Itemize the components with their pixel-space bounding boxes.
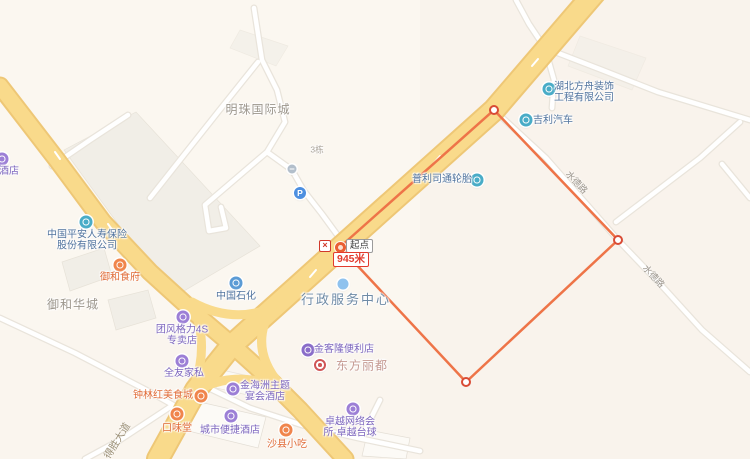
- edge-hotel-label[interactable]: 酒店: [0, 167, 19, 178]
- jili-qiche-label[interactable]: 吉利汽车: [533, 116, 573, 127]
- jinkelong-bianlidian-icon[interactable]: [302, 344, 315, 357]
- dongfang-lidu-icon[interactable]: [314, 359, 326, 371]
- zhongguo-shihua-icon[interactable]: [230, 277, 243, 290]
- kouweitang-label[interactable]: 口味堂: [162, 424, 192, 435]
- zhongguo-shihua-label[interactable]: 中国石化: [216, 292, 256, 303]
- measure-close-button[interactable]: ×: [319, 240, 331, 252]
- jinhaizhou-hotel-label[interactable]: 金海洲主题宴会酒店: [240, 382, 290, 403]
- yuhe-shifu-icon[interactable]: [114, 259, 127, 272]
- zhongguo-pingan-label[interactable]: 中国平安人寿保险股份有限公司: [47, 231, 127, 252]
- desheng-dadao-road-label: 得胜大道: [99, 419, 133, 459]
- building-3-label[interactable]: 3栋: [310, 145, 323, 155]
- jinkelong-bianlidian-label[interactable]: 金客隆便利店: [314, 345, 374, 356]
- shuide-road-1-road-label: 水德路: [563, 168, 591, 197]
- parking-icon[interactable]: P: [294, 187, 306, 199]
- hubei-fangzhou-label[interactable]: 湖北方舟装饰工程有限公司: [554, 83, 614, 104]
- yuhe-huacheng-label[interactable]: 御和华城: [47, 299, 99, 312]
- yuhe-shifu-label[interactable]: 御和食府: [100, 273, 140, 284]
- kouweitang-icon[interactable]: [171, 408, 184, 421]
- xingzheng-fuwu-zhongxin-label[interactable]: 行政服务中心: [301, 293, 391, 307]
- quanyou-jiasi-label[interactable]: 全友家私: [164, 369, 204, 380]
- measure-distance-label: 945米: [333, 252, 369, 267]
- shuide-road-2-road-label: 水德路: [640, 262, 668, 291]
- jili-qiche-icon[interactable]: [520, 114, 533, 127]
- gate-icon[interactable]: [288, 165, 297, 174]
- zhonglinhong-meishicheng-label[interactable]: 钟林红美食城: [133, 391, 193, 402]
- chengshi-bianjie-hotel-icon[interactable]: [225, 410, 238, 423]
- jinhaizhou-hotel-icon[interactable]: [227, 383, 240, 396]
- xingzheng-fuwu-zhongxin-icon[interactable]: [338, 279, 349, 290]
- dongfang-lidu-label[interactable]: 东方丽都: [336, 360, 388, 373]
- pulisitong-luntai-icon[interactable]: [471, 174, 484, 187]
- shaxian-xiaochi-label[interactable]: 沙县小吃: [267, 440, 307, 451]
- quanyou-jiasi-icon[interactable]: [176, 355, 189, 368]
- chengshi-bianjie-hotel-label[interactable]: 城市便捷酒店: [200, 426, 260, 437]
- tuanfeng-geli-4s-icon[interactable]: [177, 311, 190, 324]
- measure-start-label: 起点: [346, 239, 373, 253]
- zhuoyue-wangluo-icon[interactable]: [347, 403, 360, 416]
- edge-hotel-icon[interactable]: [0, 153, 9, 166]
- zhuoyue-wangluo-label[interactable]: 卓越网络会所·卓越台球: [323, 418, 376, 439]
- pulisitong-luntai-label[interactable]: 普利司通轮胎: [412, 175, 472, 186]
- poi-labels-layer: 酒店明珠国际城3栋P湖北方舟装饰工程有限公司吉利汽车普利司通轮胎中国平安人寿保险…: [0, 0, 750, 459]
- zhonglinhong-meishicheng-icon[interactable]: [195, 390, 208, 403]
- measure-start-marker[interactable]: [335, 242, 346, 253]
- shaxian-xiaochi-icon[interactable]: [280, 424, 293, 437]
- tuanfeng-geli-4s-label[interactable]: 团风格力4S专卖店: [156, 326, 208, 347]
- map-canvas[interactable]: 酒店明珠国际城3栋P湖北方舟装饰工程有限公司吉利汽车普利司通轮胎中国平安人寿保险…: [0, 0, 750, 459]
- zhongguo-pingan-icon[interactable]: [80, 216, 93, 229]
- mingzhu-guojicheng-label[interactable]: 明珠国际城: [225, 104, 290, 117]
